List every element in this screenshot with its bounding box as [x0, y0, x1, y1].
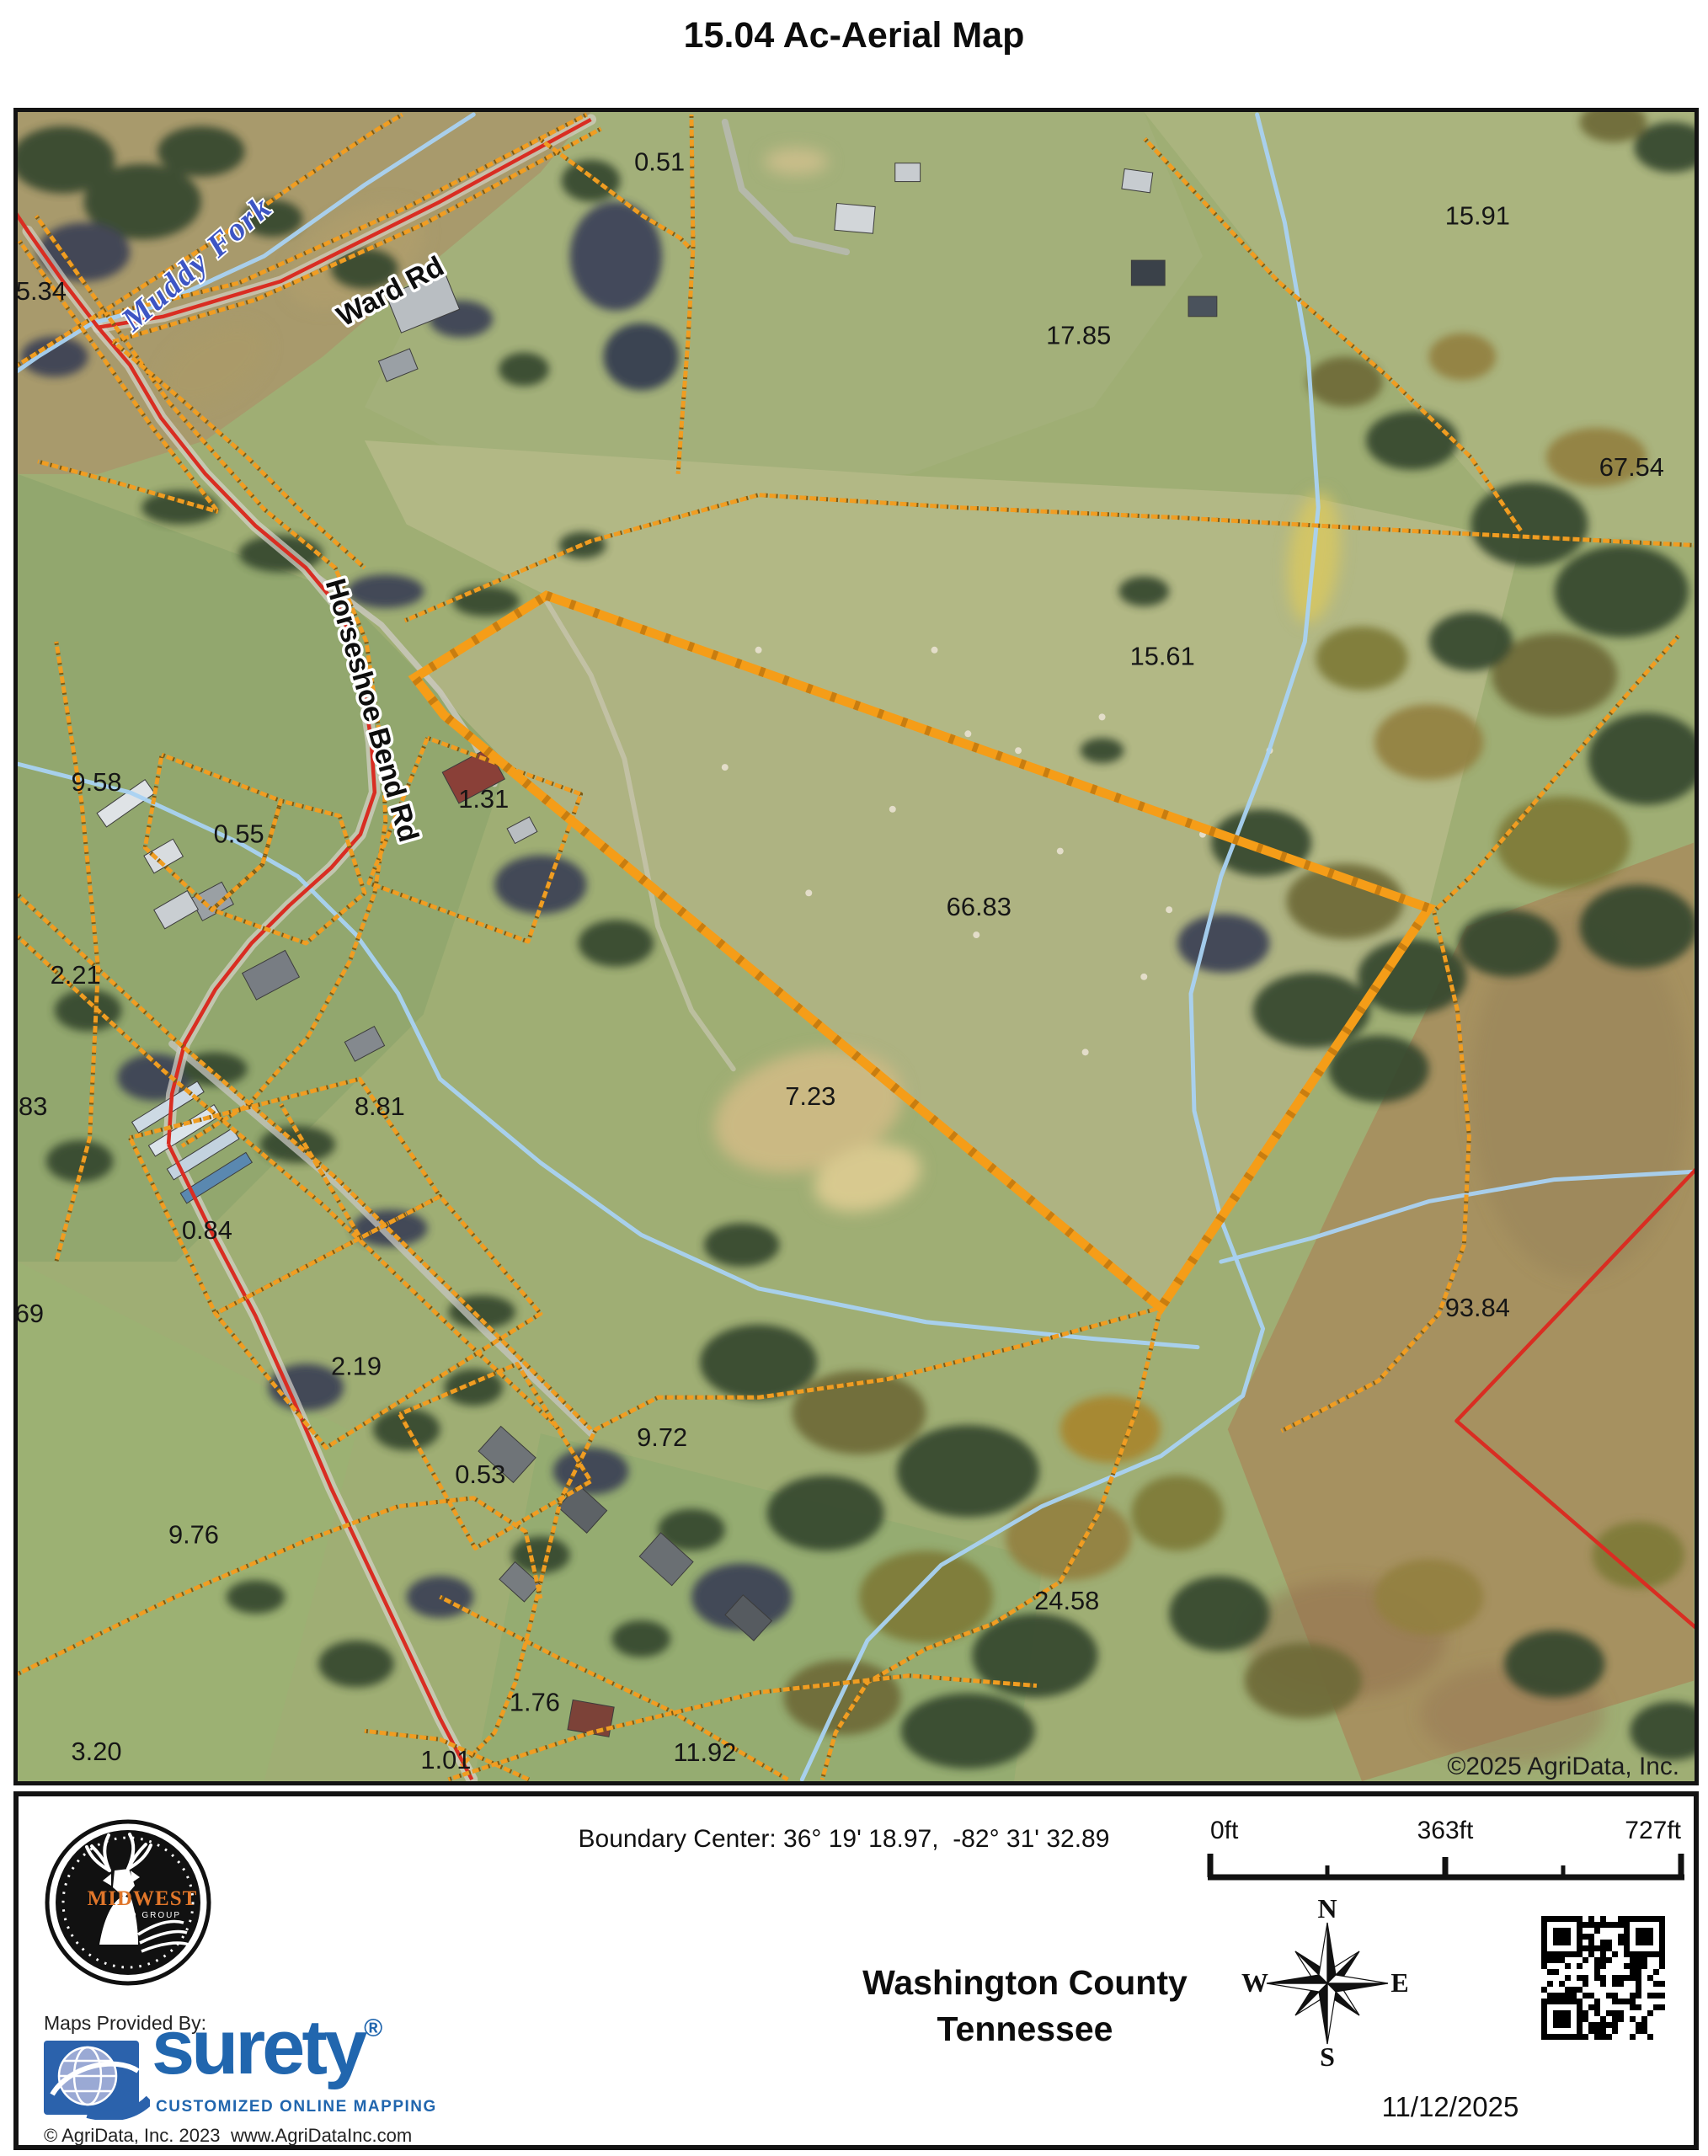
footer: MIDWEST LAND GROUP Maps Provided By: sur…: [13, 1791, 1699, 2150]
county-state-label: Washington County Tennessee: [810, 1960, 1240, 2053]
surety-registered-mark: ®: [364, 2015, 382, 2042]
surety-name: surety: [152, 2004, 364, 2090]
acreage-label: 1.76: [510, 1687, 560, 1716]
midwest-land-group-logo: MIDWEST LAND GROUP: [44, 1818, 212, 1987]
compass-rose-icon: N E S W: [1241, 1897, 1414, 2070]
page-title: 15.04 Ac-Aerial Map: [0, 15, 1708, 56]
acreage-label: 2.19: [331, 1351, 382, 1380]
compass-south: S: [1320, 2041, 1335, 2070]
aerial-map: 0.5115.9117.8567.5415.615.349.580.551.31…: [18, 112, 1695, 1781]
map-frame: 0.5115.9117.8567.5415.615.349.580.551.31…: [13, 108, 1699, 1785]
acreage-label: 17.85: [1046, 321, 1111, 350]
surety-globe-icon: [44, 2041, 150, 2120]
boundary-center-coordinates: Boundary Center: 36° 19' 18.97, -82° 31'…: [406, 1825, 1282, 1854]
surety-tagline: CUSTOMIZED ONLINE MAPPING: [156, 2098, 437, 2116]
surety-logo-text: surety®: [152, 2009, 382, 2086]
acreage-label: 69: [18, 1299, 44, 1328]
map-date: 11/12/2025: [1282, 2091, 1619, 2123]
acreage-label: 1.01: [420, 1745, 471, 1774]
acreage-label: 66.83: [947, 892, 1011, 921]
acreage-label: 0.84: [182, 1215, 232, 1245]
acreage-label: 24.58: [1034, 1586, 1099, 1615]
acreage-label: 0.51: [634, 147, 685, 177]
qr-code: [1540, 1914, 1668, 2042]
scale-mid: 363ft: [1417, 1817, 1474, 1844]
county-name: Washington County: [810, 1960, 1240, 2006]
agridata-copyright: © AgriData, Inc. 2023: [44, 2125, 220, 2147]
acreage-label: 67.54: [1599, 452, 1664, 482]
scale-bar: 0ft 363ft 727ft: [1198, 1803, 1703, 1896]
acreage-label: 1.31: [458, 784, 509, 814]
acreage-label: 9.76: [168, 1519, 219, 1549]
compass-north: N: [1317, 1897, 1337, 1924]
compass-west: W: [1241, 1967, 1268, 1998]
acreage-label: 11.92: [673, 1737, 736, 1767]
acreage-label: 2.21: [51, 960, 101, 990]
acreage-label: 93.84: [1445, 1293, 1510, 1322]
acreage-label: 15.91: [1445, 200, 1510, 230]
acreage-label: 7.23: [785, 1081, 835, 1111]
acreage-label: 9.72: [637, 1422, 687, 1452]
acreage-label: .83: [18, 1091, 47, 1121]
scale-0: 0ft: [1210, 1817, 1239, 1844]
midwest-sub-text: LAND GROUP: [109, 1911, 181, 1920]
map-copyright: ©2025 AgriData, Inc.: [1447, 1753, 1679, 1780]
acreage-label: 9.58: [72, 767, 122, 797]
acreage-label: 3.20: [72, 1737, 122, 1766]
agridata-url: www.AgriDataInc.com: [231, 2125, 412, 2147]
acreage-label: 15.61: [1130, 642, 1195, 671]
acreage-label: 0.55: [214, 819, 264, 849]
compass-east: E: [1390, 1967, 1408, 1998]
state-name: Tennessee: [810, 2006, 1240, 2052]
scale-max: 727ft: [1625, 1817, 1681, 1844]
acreage-label: 0.53: [455, 1460, 505, 1489]
acreage-label: 5.34: [18, 276, 67, 306]
midwest-brand-text: MIDWEST: [88, 1887, 198, 1910]
acreage-label: 8.81: [355, 1091, 405, 1121]
